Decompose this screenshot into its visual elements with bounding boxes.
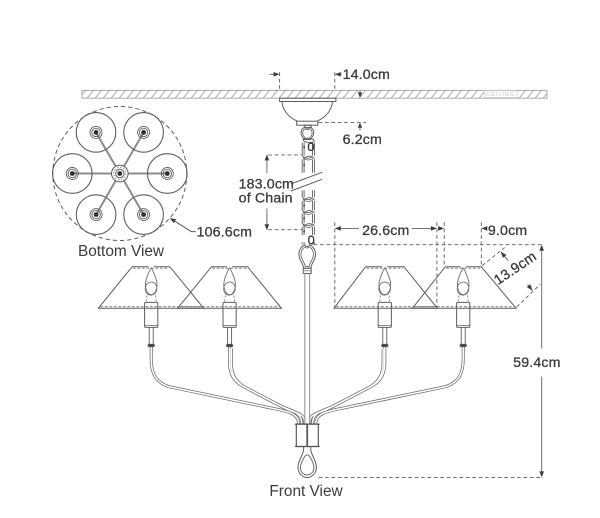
svg-text:26.6cm: 26.6cm: [362, 223, 409, 239]
svg-text:106.6cm: 106.6cm: [197, 225, 252, 241]
svg-text:6.2cm: 6.2cm: [343, 132, 382, 148]
svg-text:Bottom View: Bottom View: [78, 243, 165, 260]
svg-text:Front View: Front View: [269, 483, 343, 500]
svg-text:59.4cm: 59.4cm: [513, 355, 560, 371]
svg-text:14.0cm: 14.0cm: [343, 67, 390, 83]
svg-text:9.0cm: 9.0cm: [488, 223, 527, 239]
svg-text:CEILING: CEILING: [486, 92, 515, 98]
svg-text:of Chain: of Chain: [239, 190, 293, 206]
